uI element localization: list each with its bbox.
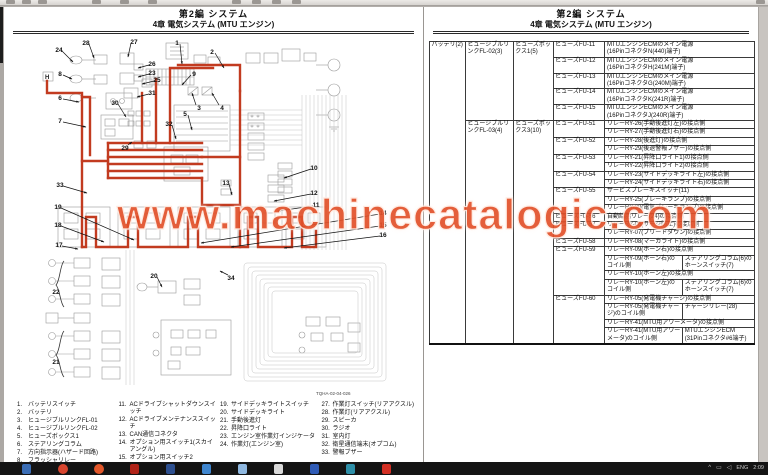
legend-number: 33. (322, 450, 333, 457)
callout-arrow (89, 44, 94, 58)
legend-number: 29. (322, 418, 333, 425)
legend-column: 11.ACドライブシャットダウンスイッチ12.ACドライブメンテナンススイッチ1… (119, 402, 218, 466)
table-cell: MTUエンジンECMのメイン電源 (16PinコネクタK(241R)端子) (605, 89, 755, 105)
callout-arrow (138, 74, 149, 77)
table-cell: ヒューズFU-15 (553, 105, 605, 121)
taskbar-icon-browser-opera[interactable] (94, 464, 104, 474)
callout-arrow (284, 169, 311, 178)
toolbar-icon[interactable] (272, 0, 281, 4)
table-cell: ステアリングコラム(6)のホーンスイッチ(7) (683, 279, 755, 295)
callout-number: 21 (52, 359, 60, 366)
header-rule (433, 31, 749, 34)
toolbar-icon[interactable] (232, 0, 241, 4)
legend-item: 30.ラジオ (322, 426, 421, 433)
legend-item: 27.作業灯スイッチ(リアアクスル) (322, 402, 421, 409)
callout-number: 7 (58, 118, 62, 125)
legend-number: 20. (220, 410, 231, 417)
header-volume: 第2編 システム (4, 9, 423, 20)
legend-item: 28.作業灯(リアアクスル) (322, 410, 421, 417)
callout-arrow (62, 51, 73, 62)
table-cell: リレーRY-21(昇降口ライト1)の接点側 (605, 154, 755, 162)
table-cell: ヒューズFU-13 (553, 73, 605, 89)
legend-number: 28. (322, 410, 333, 417)
toolbar-icon[interactable] (22, 0, 31, 4)
header-chapter: 4章 電気システム (MTU エンジン) (4, 20, 423, 29)
legend-number: 11. (119, 402, 130, 416)
callout-arrow (212, 93, 219, 105)
callout-number: 17 (55, 242, 63, 249)
table-cell: リレーRY-29(後退警報ブザー)の接点側 (605, 146, 755, 154)
table-cell: ヒュージブルリンクFL-02(3) (465, 42, 513, 121)
callout-arrow (182, 75, 191, 85)
table-cell: MTUエンジンECMのメイン電源 (16PinコネクタH(241M)端子) (605, 57, 755, 73)
legend-column: 1.バッテリスイッチ2.バッテリ3.ヒュージブルリンクFL-014.ヒュージブル… (17, 402, 116, 466)
scrollbar-track[interactable] (758, 7, 768, 462)
legend-number: 5. (17, 434, 28, 441)
header-volume: 第2編 システム (424, 9, 758, 20)
toolbar-icon[interactable] (38, 0, 47, 4)
table-cell: MTUエンジンECMのメイン電源 (16PinコネクタN(440)端子) (605, 42, 755, 58)
legend-label: 手動後進灯 (231, 418, 319, 425)
callout-arrow (138, 65, 149, 68)
figure-caption: TQHA-02-04-026 (316, 391, 351, 396)
page-header: 第2編 システム 4章 電気システム (MTU エンジン) (424, 7, 758, 29)
callout-number: 25 (153, 77, 161, 84)
header-rule (13, 31, 414, 34)
legend-label: バッテリ (28, 410, 116, 417)
legend-label: 方向指示器(ハザード回路) (28, 450, 116, 457)
legend-number: 4. (17, 426, 28, 433)
callout-number: 27 (130, 39, 138, 46)
table-cell: リレーRY-24(サイドデッキライト右)の接点側 (605, 179, 755, 187)
taskbar-icon-mail-app[interactable] (166, 464, 175, 474)
toolbar-icon[interactable] (6, 0, 15, 4)
header-chapter: 4章 電気システム (MTU エンジン) (424, 20, 758, 29)
legend-item: 22.昇降口ライト (220, 426, 319, 433)
taskbar-icon-word-app[interactable] (310, 464, 319, 474)
tray-language[interactable]: ENG (736, 464, 748, 473)
table-cell: リレーRY-09(ホーン右)のコイル側 (605, 255, 683, 271)
callout-number: 19 (54, 204, 62, 211)
table-cell: ヒューズFU-54 (553, 171, 605, 188)
system-tray[interactable]: ^ ▭ ◁ ENG 2:09 (708, 464, 764, 473)
taskbar: ^ ▭ ◁ ENG 2:09 (0, 462, 768, 475)
legend-item: 6.ステアリングコラム (17, 442, 116, 449)
callout-number: 31 (148, 90, 156, 97)
callout-number: 23 (148, 70, 156, 77)
table-cell: ヒューズFU-53 (553, 154, 605, 171)
table-cell: チャージリレー(28) (683, 304, 755, 320)
legend-label: 作業灯スイッチ(リアアクスル) (333, 402, 421, 409)
table-cell: リレーRY-41(MTU用アワーメータ)のコイル側 (605, 328, 683, 344)
table-cell: ヒューズFU-12 (553, 57, 605, 73)
legend-number: 3. (17, 418, 28, 425)
table-cell: ヒューズFU-52 (553, 137, 605, 154)
callout-number: 1 (175, 40, 179, 47)
table-cell: MTUエンジンECMのメイン電源 (16PinコネクタG(240M)端子) (605, 73, 755, 89)
legend-label: スピーカ (333, 418, 421, 425)
table-cell: リレーRY-05(発電機チャージ)の接点側 (605, 295, 755, 303)
legend-number: 15. (119, 455, 130, 462)
table-cell: リレーRY-09(ホーン右)の接点側 (605, 247, 755, 255)
tray-network-icon[interactable]: ▭ (716, 464, 722, 473)
svg-text:H: H (45, 75, 49, 81)
table-cell: リレーRY-41(MTU用アワーメータ)の接点側 (605, 319, 755, 327)
legend-label: 作業灯(エンジン室) (231, 442, 319, 449)
toolbar-icon[interactable] (756, 0, 765, 4)
legend-item: 19.サイドデッキライトスイッチ (220, 402, 319, 409)
pdf-toolbar (0, 0, 768, 6)
table-cell: ステアリングコラム(6)のホーンスイッチ(7) (683, 255, 755, 271)
table-cell: ヒューズFU-11 (553, 42, 605, 58)
taskbar-icon-notification-badge[interactable] (382, 464, 391, 474)
callout-number: 5 (183, 111, 187, 118)
callout-arrow (62, 246, 78, 249)
legend-item: 14.オプション用スイッチ1(スカイアングル) (119, 440, 218, 454)
legend-number: 13. (119, 432, 130, 439)
legend-label: CAN通信コネクタ (130, 432, 218, 439)
tray-clock[interactable]: 2:09 (753, 464, 764, 473)
table-cell: リレーRY-27(手動後進灯右)の接点側 (605, 129, 755, 137)
taskbar-icon-browser-chrome[interactable] (58, 464, 68, 474)
legend-item: 15.オプション用スイッチ2 (119, 455, 218, 462)
table-cell: リレーRY-05(発電機チャージ)のコイル側 (605, 304, 683, 320)
legend-item: 7.方向指示器(ハザード回路) (17, 450, 116, 457)
legend-item: 33.警報ブザー (322, 450, 421, 457)
table-cell: リレーRY-26(手動後進灯左)の接点側 (605, 121, 755, 129)
toolbar-icon[interactable] (292, 0, 301, 4)
legend-item: 3.ヒュージブルリンクFL-01 (17, 418, 116, 425)
taskbar-icon-document-app[interactable] (274, 464, 283, 474)
callout-number: 4 (220, 105, 224, 112)
toolbar-icon[interactable] (252, 0, 261, 4)
taskbar-icon-teal-app[interactable] (346, 464, 355, 474)
table-cell: ヒューズFU-59 (553, 247, 605, 295)
watermark: www.machinecatalogic.com (117, 191, 713, 240)
legend-number: 24. (220, 442, 231, 449)
callout-number: 22 (52, 289, 60, 296)
legend-label: サイドデッキライトスイッチ (231, 402, 319, 409)
legend-item: 20.サイドデッキライト (220, 410, 319, 417)
page-header: 第2編 システム 4章 電気システム (MTU エンジン) (4, 7, 423, 29)
callout-number: 10 (310, 165, 318, 172)
legend-item: 12.ACドライブメンテナンススイッチ (119, 417, 218, 431)
callout-number: 34 (227, 275, 235, 282)
legend-label: ヒュージブルリンクFL-01 (28, 418, 116, 425)
taskbar-icon-app-blue[interactable] (202, 464, 211, 474)
callout-number: 18 (54, 222, 62, 229)
table-cell: リレーRY-23(サイドデッキライト左)の接点側 (605, 171, 755, 179)
legend-number: 31. (322, 434, 333, 441)
legend-item: 5.ヒューズボックス1 (17, 434, 116, 441)
legend-label: ヒューズボックス1 (28, 434, 116, 441)
legend-label: ヒュージブルリンクFL-02 (28, 426, 116, 433)
callout-number: 28 (82, 40, 90, 47)
table-cell: ヒューズFU-51 (553, 121, 605, 138)
legend-item: 13.CAN通信コネクタ (119, 432, 218, 439)
legend-number: 32. (322, 442, 333, 449)
table-cell: リレーRY-10(ホーン左)の接点側 (605, 271, 755, 279)
legend-column: 27.作業灯スイッチ(リアアクスル)28.作業灯(リアアクスル)29.スピーカ3… (322, 402, 421, 466)
table-cell: MTUエンジンECM (31Pinコネクタ#6端子) (683, 328, 755, 344)
callout-number: 29 (121, 145, 129, 152)
legend-item: 29.スピーカ (322, 418, 421, 425)
legend-item: 24.作業灯(エンジン室) (220, 442, 319, 449)
legend-column: 19.サイドデッキライトスイッチ20.サイドデッキライト21.手動後進灯22.昇… (220, 402, 319, 466)
callout-number: 32 (165, 121, 173, 128)
table-cell: ヒューズボックス1(5) (513, 42, 553, 121)
legend-label: ACドライブシャットダウンスイッチ (130, 402, 218, 416)
legend-number: 19. (220, 402, 231, 409)
callout-number: 30 (111, 100, 119, 107)
legend-label: ラジオ (333, 426, 421, 433)
table-cell: リレーRY-22(昇降口ライト2)の接点側 (605, 163, 755, 171)
taskbar-icon-pdf-reader[interactable] (130, 464, 139, 474)
legend-number: 14. (119, 440, 130, 454)
legend-label: 昇降口ライト (231, 426, 319, 433)
toolbar-icon[interactable] (120, 0, 129, 4)
legend-label: 室内灯 (333, 434, 421, 441)
callout-number: 3 (197, 105, 201, 112)
callout-number: 24 (55, 47, 63, 54)
legend-label: 衛星通信端末(オプコム) (333, 442, 421, 449)
legend-item: 11.ACドライブシャットダウンスイッチ (119, 402, 218, 416)
callout-number: 9 (192, 71, 196, 78)
legend-number: 2. (17, 410, 28, 417)
legend-label: バッテリスイッチ (28, 402, 116, 409)
callout-number: 13 (222, 180, 230, 187)
legend-number: 23. (220, 434, 231, 441)
legend-number: 27. (322, 402, 333, 409)
legend-item: 21.手動後進灯 (220, 418, 319, 425)
legend-item: 4.ヒュージブルリンクFL-02 (17, 426, 116, 433)
legend-number: 30. (322, 426, 333, 433)
window-edge (0, 7, 3, 63)
taskbar-icon-start-button[interactable] (22, 464, 31, 474)
legend-label: 警報ブザー (333, 450, 421, 457)
legend-label: ACドライブメンテナンススイッチ (130, 417, 218, 431)
callout-number: 8 (58, 71, 62, 78)
toolbar-icon[interactable] (92, 0, 101, 4)
table-cell: ヒューズFU-60 (553, 295, 605, 344)
table-cell: リレーRY-10(ホーン左)のコイル側 (605, 279, 683, 295)
toolbar-icon[interactable] (148, 0, 157, 4)
legend-number: 7. (17, 450, 28, 457)
taskbar-icon-file-explorer[interactable] (238, 464, 247, 474)
legend-label: サイドデッキライト (231, 410, 319, 417)
legend-number: 6. (17, 442, 28, 449)
table-cell: ヒューズFU-14 (553, 89, 605, 105)
legend-label: オプション用スイッチ2 (130, 455, 218, 462)
legend-item: 1.バッテリスイッチ (17, 402, 116, 409)
callout-number: 6 (58, 95, 62, 102)
legend-item: 23.エンジン室作業灯インジケータ (220, 434, 319, 441)
legend-item: 32.衛星通信端末(オプコム) (322, 442, 421, 449)
legend-number: 21. (220, 418, 231, 425)
callout-arrow (63, 186, 87, 193)
callout-arrow (63, 99, 79, 102)
callout-number: 2 (210, 49, 214, 56)
table-cell: MTUエンジンECMのメイン電源 (16PinコネクタJ(240R)端子) (605, 105, 755, 121)
legend-label: 作業灯(リアアクスル) (333, 410, 421, 417)
legend-label: ステアリングコラム (28, 442, 116, 449)
table-cell: リレーRY-28(後進灯)の接点側 (605, 137, 755, 145)
callout-number: 33 (56, 182, 64, 189)
callout-number: 20 (150, 273, 158, 280)
callout-number: 26 (148, 61, 156, 68)
legend-number: 1. (17, 402, 28, 409)
desktop-screen: 第2編 システム 4章 電気システム (MTU エンジン) (0, 0, 768, 475)
legend-label: オプション用スイッチ1(スカイアングル) (130, 440, 218, 454)
legend-number: 22. (220, 426, 231, 433)
legend-number: 12. (119, 417, 130, 431)
tray-chevron-icon[interactable]: ^ (708, 464, 711, 473)
legend-item: 2.バッテリ (17, 410, 116, 417)
tray-volume-icon[interactable]: ◁ (727, 464, 732, 473)
legend-item: 31.室内灯 (322, 434, 421, 441)
legend: 1.バッテリスイッチ2.バッテリ3.ヒュージブルリンクFL-014.ヒュージブル… (17, 402, 420, 466)
legend-label: エンジン室作業灯インジケータ (231, 434, 319, 441)
